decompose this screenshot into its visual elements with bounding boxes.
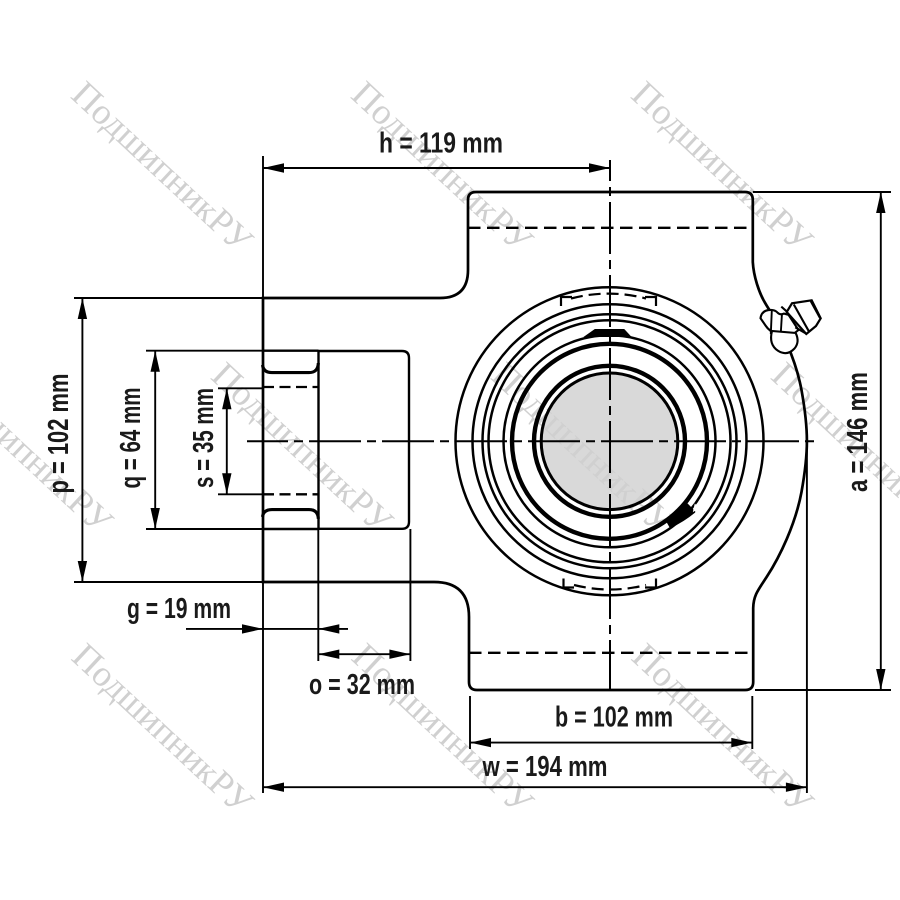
svg-text:p = 102 mm: p = 102 mm xyxy=(43,374,75,494)
svg-text:b = 102 mm: b = 102 mm xyxy=(555,702,673,734)
svg-text:a = 146 mm: a = 146 mm xyxy=(842,372,874,492)
svg-text:q = 64 mm: q = 64 mm xyxy=(115,388,147,489)
svg-text:h = 119 mm: h = 119 mm xyxy=(379,128,503,160)
svg-text:s = 35 mm: s = 35 mm xyxy=(188,388,220,488)
svg-text:w = 194 mm: w = 194 mm xyxy=(482,751,608,783)
svg-text:g = 19 mm: g = 19 mm xyxy=(127,593,231,625)
svg-text:o = 32 mm: o = 32 mm xyxy=(309,669,415,701)
